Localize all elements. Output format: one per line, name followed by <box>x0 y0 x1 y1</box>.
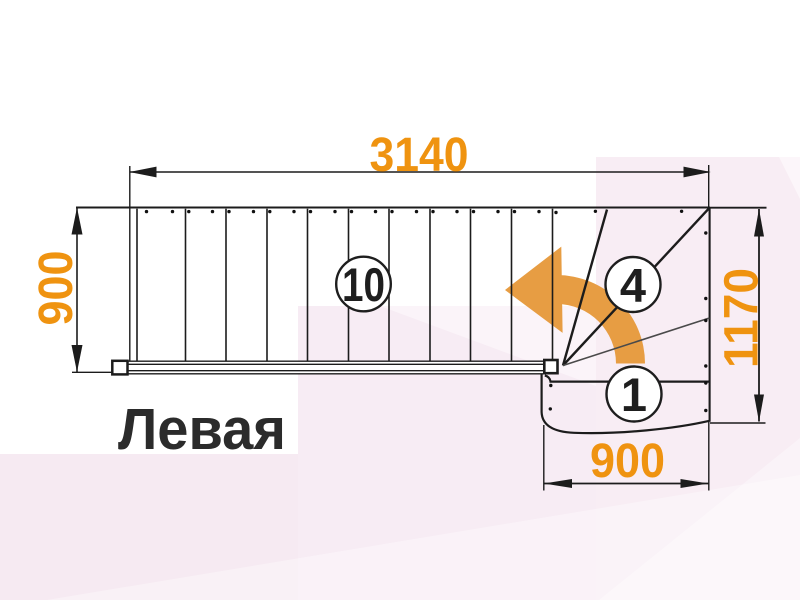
svg-text:10: 10 <box>342 258 385 311</box>
svg-text:1170: 1170 <box>716 268 769 368</box>
svg-text:1: 1 <box>621 368 647 421</box>
svg-text:4: 4 <box>620 259 646 312</box>
svg-text:3140: 3140 <box>370 129 469 182</box>
svg-text:Левая: Левая <box>118 397 286 462</box>
svg-text:900: 900 <box>590 435 665 488</box>
svg-text:900: 900 <box>30 251 83 326</box>
